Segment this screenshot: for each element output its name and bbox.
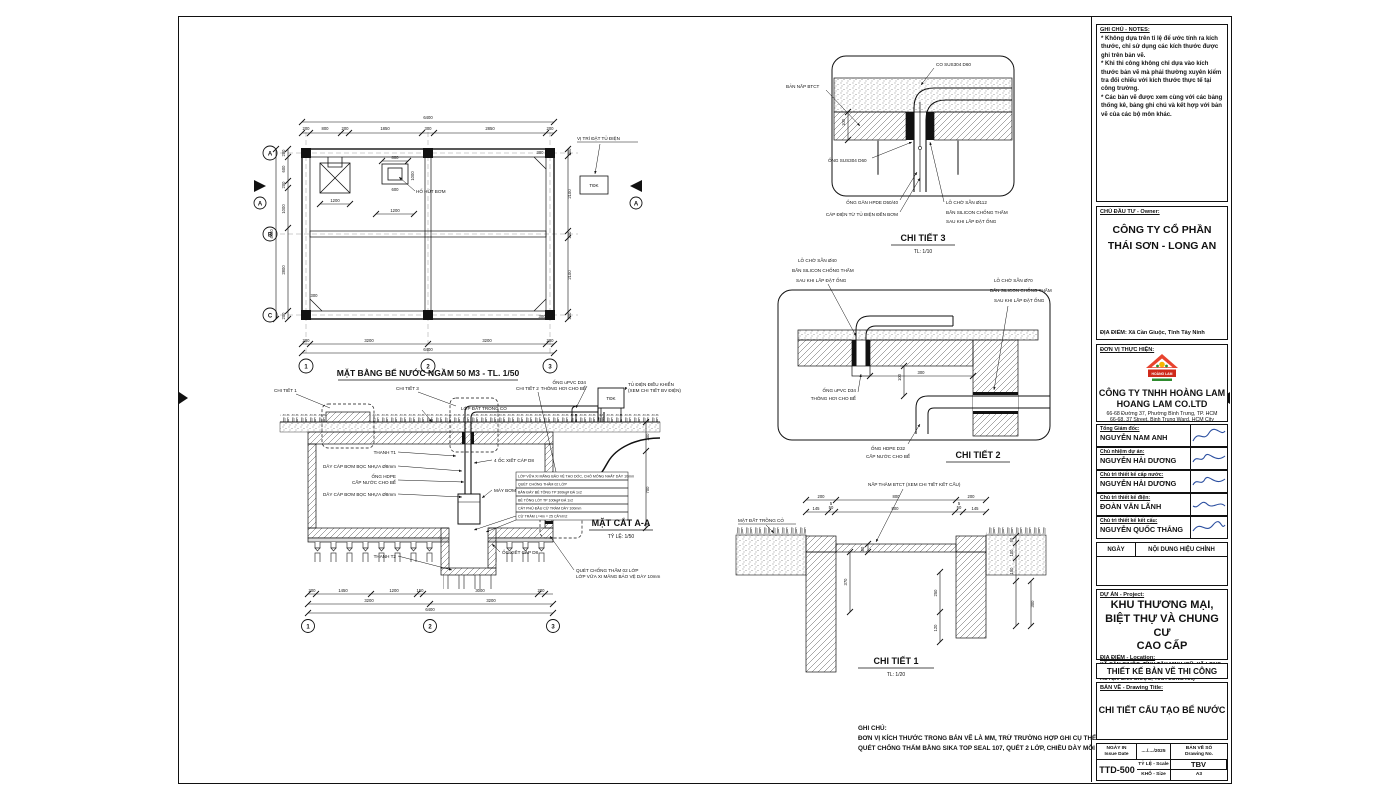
dim-label: 145 [972,506,980,511]
owner-name: THÁI SƠN - LONG AN [1097,239,1227,255]
section-label: QUÉT CHỐNG THẤM 02 LỚP [576,567,638,573]
dim-label: 370 [843,578,848,586]
detail-label: NẮP THĂM BTCT (XEM CHI TIẾT KẾT CẤU) [868,480,961,487]
dim-label: 300 [645,433,650,441]
note-item: * Các bản vẽ được xem cùng với các bảng … [1101,94,1223,119]
section-label: MÁY BƠM [494,487,516,493]
drawing-title-box: BẢN VẼ - Drawing Title: CHI TIẾT CẤU TẠO… [1096,682,1228,740]
section-callout-labels: CHI TIẾT 1 CHI TIẾT 3 CHI TIẾT 2 [274,385,539,393]
dim-label: 200 [567,312,572,320]
role-label: Tổng Giám đốc: [1100,426,1187,432]
project-location-label: ĐỊA ĐIỂM - Location: [1097,654,1227,661]
dim-label: 3200 [486,598,496,603]
detail-label: SAU KHI LẮP ĐẶT ỐNG [994,296,1045,303]
dim-label: 1850 [380,126,390,131]
detail-label: LỖ CHỜ SẴN Ø40 [798,257,837,263]
fold-mark-left [179,392,188,404]
detail-label: SAU KHI LẮP ĐẶT ỐNG [946,217,997,224]
section-label: ỐC XIẾT CÁP D8 [502,549,539,555]
detail-label: CẤP NƯỚC CHO BỂ [866,453,910,459]
dim-label: 3200 [482,338,492,343]
detail-label: BẮN SILICON CHỐNG THẤM [792,266,854,273]
section-bubbles: 1 2 3 [302,620,560,633]
role-name: NGUYỄN NAM ANH [1100,433,1187,442]
role-row: Chủ nhiệm dự án: NGUYỄN HẢI DƯƠNG [1096,447,1228,470]
dim-label: 80 [860,546,865,551]
note-item: * Không dựa trên tỉ lệ để ước tính ra kí… [1101,35,1223,60]
detail-2: 300 100 LỖ CHỜ SẴN Ø40 BẮN SILICON CHỐNG… [768,252,1088,477]
revision-content-header: NỘI DUNG HIỆU CHỈNH [1136,543,1227,556]
dim-label: 100 [1009,549,1014,557]
role-label: Chủ trì thiết kế cấp nước: [1100,472,1187,478]
role-label: Chủ nhiệm dự án: [1100,449,1187,455]
section-label: ỐNG uPVC D34 [553,379,587,385]
panel-tag: TĐK [606,396,616,401]
dim-label: 800 [392,155,400,160]
scale-label: TỶ LỆ - Scale [1137,760,1171,770]
dim-label: 200 [281,149,286,157]
project-title: BIỆT THỰ VÀ CHUNG CƯ [1097,613,1227,641]
detail-label: ỐNG SUS304 D60 [828,157,867,163]
dim-label: 1000 [281,204,286,214]
note-item: * Khi thi công không chỉ dựa vào kích th… [1101,60,1223,94]
dim-label: 200 [303,338,311,343]
callout-label: CHI TIẾT 1 [274,387,297,393]
revision-box: NGÀY NỘI DUNG HIỆU CHỈNH [1096,542,1228,586]
d1-title: CHI TIẾT 1 TL: 1/20 [858,656,934,678]
detail-label: LỖ CHỜ SẴN Ø112 [946,199,987,205]
dim-label: 200 [818,494,826,499]
dim-label: 150 [1009,567,1014,575]
detail-label: SAU KHI LẮP ĐẶT ỐNG [796,276,847,283]
dim-label: 600 [392,187,400,192]
callout-label: CHI TIẾT 2 [516,385,539,391]
dim-label: 200 [968,494,976,499]
detail-title: CHI TIẾT 1 [873,656,918,666]
owner-location: ĐỊA ĐIỂM: Xã Cần Giuộc, Tỉnh Tây Ninh [1097,330,1208,336]
dim-label: 600 [281,165,286,173]
dim-label: 150 [417,588,425,593]
section-label: (XEM CHI TIẾT BV ĐIỆN) [628,386,681,393]
drawing-title: CHI TIẾT CẤU TẠO BỂ NƯỚC [1097,705,1227,715]
plan-view: 6400 200 800 200 1850 300 2850 200 4400 … [246,92,666,392]
dim-label: 6400 [423,347,433,352]
grid-bubble: 2 [428,625,432,631]
dim-label: 200 [547,338,555,343]
dim-label: 300 [918,370,926,375]
size-label: KHỔ - Size [1137,770,1171,780]
stack-item: BẢN ĐÁY BÊ TÔNG TP 300kg# ĐÁ 1x2 [518,490,582,495]
dim-label: 3200 [364,598,374,603]
owner-label: CHỦ ĐẦU TƯ - Owner: [1097,207,1227,215]
dim-label: 300 [539,314,547,319]
drawing-page: 6400 200 800 200 1850 300 2850 200 4400 … [0,0,1400,800]
dim-label: 3000 [475,588,485,593]
d1-labels: NẮP THĂM BTCT (XEM CHI TIẾT KẾT CẤU) MẶT… [738,480,961,524]
view-scale: TỶ LỆ: 1/50 [608,532,635,540]
role-row: Chủ trì thiết kế kết cấu: NGUYỄN QUỐC TH… [1096,516,1228,539]
dim-label: 300 [311,293,319,298]
role-name: NGUYỄN HẢI DƯƠNG [1100,479,1187,488]
project-title: KHU THƯƠNG MẠI, [1097,599,1227,613]
dim-label: 200 [567,231,572,239]
issue-date-value: ..../..../2025 [1137,744,1171,760]
callout-label: CHI TIẾT 3 [396,385,419,391]
section-label: LỚP ĐẤT TRỒNG CỎ [461,405,507,411]
plan-dim-labels: 6400 200 800 200 1850 300 2850 200 4400 … [269,115,572,352]
dim-label: 1450 [338,588,348,593]
dim-label: 300 [537,150,545,155]
drawing-no-label-en: Drawing No. [1185,752,1213,758]
executor-name: HOANG LAM CO.LTD [1097,399,1227,410]
section-label: CẤP NƯỚC CHO BỂ [352,479,396,485]
detail-title: CHI TIẾT 2 [955,450,1000,460]
signature [1191,427,1227,445]
revision-date-header: NGÀY [1097,543,1136,556]
detail-label: MẶT ĐẤT TRỒNG CỎ [738,517,784,523]
dim-label: 2800 [281,265,286,275]
grid-bubble: A [268,152,273,158]
signature [1191,473,1227,491]
stack-item: CÁT PHỦ ĐẦU CỪ TRÀM DÀY 100mm [518,506,581,511]
size-value: A3 [1171,770,1227,780]
dim-label: 200 [281,312,286,320]
panel-position-label: VỊ TRÍ ĐẶT TỦ ĐIỆN [577,134,620,141]
detail-label: CÁP ĐIỆN TỪ TỦ ĐIỆN ĐẾN BƠM [826,210,898,217]
section-label: THÔNG HƠI CHO BỂ [541,385,586,391]
detail-3: 100 CO SUS304 D60 BẢN NẮP BTCT ỐNG SUS30… [768,52,1078,257]
plan-bubble-labels: A B C 1 2 3 [268,152,553,371]
project-label: DỰ ÁN - Project: [1097,590,1227,598]
detail-label: THÔNG HƠI CHO BỂ [811,395,856,401]
owner-name: CÔNG TY CỔ PHẦN [1097,223,1227,239]
dim-label: 800 [322,126,330,131]
issue-date-label-en: Issue Date [1105,752,1129,758]
logo-text: HOÀNG LAM [1152,371,1173,376]
view-title: MẶT CẮT A-A [592,518,651,528]
dim-label: 6400 [425,607,435,612]
stage-bar: THIẾT KẾ BẢN VẼ THI CÔNG [1096,663,1228,679]
detail-label: LỖ CHỜ SẴN Ø70 [994,277,1033,283]
section-label: ỐNG HDPE [371,473,396,479]
owner-box: CHỦ ĐẦU TƯ - Owner: CÔNG TY CỔ PHẦN THÁI… [1096,206,1228,340]
section-mark-label: A [258,202,263,208]
pump-pit-label: HỐ HÚT BƠM [416,188,446,194]
dim-label: 50 [1009,537,1014,542]
signature [1191,496,1227,514]
panel-tag: TĐK [589,183,599,188]
stack-item: CỪ TRÀM L=4m = 25 CÂY/m2 [518,514,567,519]
project-title: CAO CẤP [1097,640,1227,654]
role-label: Chủ trì thiết kế kết cấu: [1100,518,1187,524]
stack-item: LỚP VỮA XI MĂNG BẢO VỆ TẠO DỐC, CHỖ MỎNG… [518,474,634,479]
d1-structure [806,536,986,672]
grid-bubble: B [268,233,273,239]
dim-label: 2850 [485,126,495,131]
dim-label: 2100 [567,270,572,280]
section-label: DÂY CÁP BƠM BỌC NHỰA Ø8mm [323,463,396,469]
d2-title: CHI TIẾT 2 [946,450,1010,462]
executor-address: 66-68, 37 Street, Binh Trung Ward, HCM C… [1097,417,1227,424]
dim-label: 200 [567,148,572,156]
grid-bubble: 3 [551,625,555,631]
section-label: LỚP VỮA XI MĂNG BẢO VỆ DÀY 10mm [576,572,660,579]
dim-label: 250 [933,589,938,597]
section-title: MẶT CẮT A-A TỶ LỆ: 1/50 [589,518,653,540]
executor-name: CÔNG TY TNHH HOÀNG LAM [1097,388,1227,399]
detail-label: ỐNG HDPE D32 [871,445,906,451]
detail-label: ỐNG GÂN HPDE D50/40 [846,199,898,205]
section-label: THANH T2 [374,554,397,559]
plan-gridlines [280,132,578,354]
role-name: ĐOÀN VĂN LÃNH [1100,502,1187,511]
executor-box: ĐƠN VỊ THỰC HIỆN: HOÀNG LAM CÔNG TY TNHH… [1096,344,1228,422]
dim-label: 200 [342,126,350,131]
dim-label: 200 [303,126,311,131]
detail-label: BẮN SILICON CHỐNG THẤM [990,286,1052,293]
detail-label: ỐNG uPVC D34 [823,387,857,393]
stack-item: BÊ TÔNG LÓT TP 100kg# ĐÁ 1x2 [518,498,573,503]
dim-label: 100 [841,118,846,126]
detail-label: BẮN SILICON CHỐNG THẤM [946,208,1008,215]
dim-label: 700 [645,486,650,494]
dim-label: 145 [813,506,821,511]
section-label: THANH T1 [374,450,397,455]
detail-label: CO SUS304 D60 [936,62,971,67]
stack-item: QUÉT CHỐNG THẤM 02 LỚP [518,482,567,487]
grid-bubble: 3 [548,365,552,371]
executor-label: ĐƠN VỊ THỰC HIỆN: [1097,345,1227,353]
signature [1191,450,1227,468]
role-name: NGUYỄN QUỐC THẮNG [1100,525,1187,534]
scale-value: TBV [1171,760,1227,770]
dim-label: 2100 [567,189,572,199]
company-logo-icon: HOÀNG LAM [1144,353,1180,383]
detail-label: BẢN NẮP BTCT [786,82,820,89]
detail-1: 200 800 200 145 50 800 50 145 5 5 80 370… [718,478,1063,683]
dim-label: 1200 [390,208,400,213]
grid-bubble: 1 [304,365,308,371]
dim-label: 800 [892,506,900,511]
dim-label: 200 [538,588,546,593]
dim-label: 1200 [389,588,399,593]
section-view: TĐK CHI TIẾT 1 CHI TIẾT 3 CHI TIẾT 2 [246,376,686,636]
section-label: 4 ỐC XIẾT CÁP D8 [494,457,534,463]
grid-bubble: C [268,314,273,320]
dim-label: 100 [897,373,902,381]
signature [1191,519,1227,537]
notes-title: GHI CHÚ - NOTES: [1097,25,1227,33]
drawing-title-label: BẢN VẼ - Drawing Title: [1097,683,1227,691]
drawing-number: TTD-500 [1097,760,1137,780]
dim-label: 6400 [423,115,433,120]
project-box: DỰ ÁN - Project: KHU THƯƠNG MẠI, BIỆT TH… [1096,589,1228,660]
role-row: Chủ trì thiết kế cấp nước: NGUYỄN HẢI DƯ… [1096,470,1228,493]
detail-title: CHI TIẾT 3 [900,233,945,243]
titleblock-divider [1091,16,1092,782]
role-name: NGUYỄN HẢI DƯƠNG [1100,456,1187,465]
role-row: Tổng Giám đốc: NGUYỄN NAM ANH [1096,424,1228,447]
dim-label: 200 [309,588,317,593]
role-row: Chủ trì thiết kế điện: ĐOÀN VĂN LÃNH [1096,493,1228,516]
dim-label: 200 [547,126,555,131]
dim-label: 300 [425,126,433,131]
plan-pump-pit-label: HỐ HÚT BƠM [399,177,446,194]
dim-label: 1200 [330,198,340,203]
section-mark-label: A [634,202,639,208]
section-label: TỦ ĐIỆN ĐIỀU KHIỂN [628,380,674,387]
notes-box: GHI CHÚ - NOTES: * Không dựa trên tỉ lệ … [1096,24,1228,202]
dim-label: 120 [933,624,938,632]
grid-bubble: 1 [306,625,310,631]
dim-label: 3200 [364,338,374,343]
dim-label: 200 [281,181,286,189]
issue-box: NGÀY IN Issue Date ..../..../2025 BẢN VẼ… [1096,743,1228,781]
detail-scale: TL: 1/20 [887,672,906,678]
plan-dim-lines [273,119,571,356]
role-label: Chủ trì thiết kế điện: [1100,495,1187,501]
plan-panel: TĐK VỊ TRÍ ĐẶT TỦ ĐIỆN [577,134,638,194]
dim-label: 1000 [410,171,415,181]
dim-label: 300 [1030,600,1035,608]
section-label: DÂY CÁP BƠM BỌC NHỰA Ø8mm [323,491,396,497]
